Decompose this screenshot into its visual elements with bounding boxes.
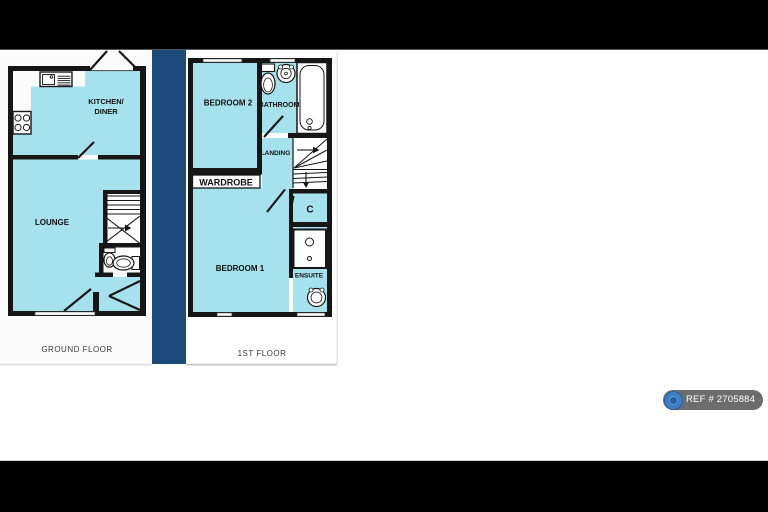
window	[217, 313, 232, 316]
shower-icon	[294, 230, 327, 269]
basin-icon	[277, 65, 295, 83]
lounge-label: LOUNGE	[35, 218, 70, 227]
sink-unit-icon	[40, 72, 72, 87]
bedroom2-label: BEDROOM 2	[204, 99, 253, 108]
cupboard-label: C	[306, 205, 313, 216]
letterbox-top	[0, 0, 768, 50]
window	[203, 59, 242, 62]
toilet-icon	[261, 64, 275, 94]
wardrobe-label: WARDROBE	[199, 178, 253, 188]
bedroom1-label: BEDROOM 1	[216, 264, 265, 273]
bathtub-icon	[297, 63, 327, 134]
kitchen-diner-label-2: DINER	[94, 107, 118, 116]
hob-icon	[13, 112, 31, 135]
window	[270, 59, 295, 62]
room-landing	[262, 138, 293, 190]
window	[297, 313, 325, 316]
bathroom-label: BATHROOM	[259, 102, 300, 109]
basin-icon	[113, 256, 140, 270]
first-floor-plan: WARDROBE	[188, 58, 332, 358]
toilet-icon	[308, 288, 326, 307]
room-bedroom2	[193, 63, 257, 168]
stair-well	[293, 134, 327, 188]
floorplan-image: KITCHEN/ DINER LOUNGE GROUND FLOOR	[0, 0, 768, 512]
first-floor-label: 1ST FLOOR	[238, 349, 287, 358]
plan-divider	[152, 49, 186, 364]
letterbox-bottom	[0, 460, 768, 512]
window	[35, 312, 95, 316]
floorplan-viewer: KITCHEN/ DINER LOUNGE GROUND FLOOR	[0, 0, 768, 512]
wardrobe-box: WARDROBE	[193, 175, 261, 188]
camera-lens-icon	[669, 396, 678, 405]
kitchen-diner-label-1: KITCHEN/	[88, 97, 124, 106]
ref-badge: REF # 2705884	[663, 390, 763, 410]
landing-label: LANDING	[261, 150, 291, 157]
ground-floor-label: GROUND FLOOR	[41, 345, 112, 354]
room-bedroom1	[193, 188, 289, 312]
ref-number: REF # 2705884	[686, 390, 755, 410]
camera-icon	[664, 391, 683, 410]
ensuite-label: ENSUITE	[295, 273, 324, 280]
stair-well	[104, 191, 140, 244]
